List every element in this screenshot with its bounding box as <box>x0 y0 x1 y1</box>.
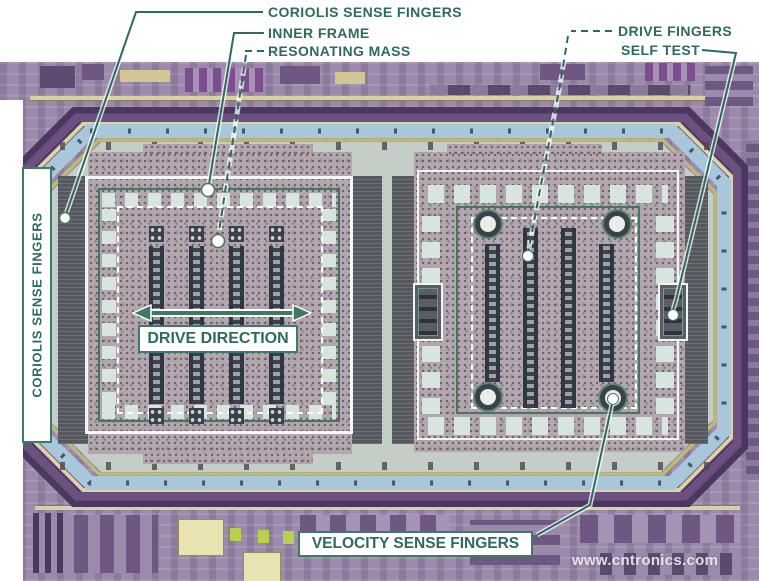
label-inner-frame: INNER FRAME <box>268 25 370 41</box>
label-velocity-sense-fingers: VELOCITY SENSE FINGERS <box>298 531 533 557</box>
marker-inner-frame <box>202 184 215 197</box>
marker-drive-fingers <box>523 251 534 262</box>
marker-resonating-mass <box>212 235 225 248</box>
label-coriolis-sense-fingers-side: CORIOLIS SENSE FINGERS <box>22 167 52 443</box>
drive-arrowhead-right <box>293 305 311 321</box>
marker-self-test <box>668 310 679 321</box>
annotation-overlay <box>0 0 759 581</box>
watermark-text: www.cntronics.com <box>572 552 718 569</box>
drive-arrowhead-left <box>133 305 151 321</box>
marker-velocity <box>608 394 619 405</box>
label-drive-fingers: DRIVE FINGERS <box>618 23 732 39</box>
leader-self-test <box>673 50 736 310</box>
label-coriolis-sense-fingers-top: CORIOLIS SENSE FINGERS <box>268 4 462 20</box>
label-resonating-mass: RESONATING MASS <box>268 43 411 59</box>
label-self-test: SELF TEST <box>621 42 700 58</box>
label-drive-direction: DRIVE DIRECTION <box>138 325 298 353</box>
annotated-die-micrograph: CORIOLIS SENSE FINGERS INNER FRAME RESON… <box>0 0 759 581</box>
marker-coriolis <box>60 213 71 224</box>
